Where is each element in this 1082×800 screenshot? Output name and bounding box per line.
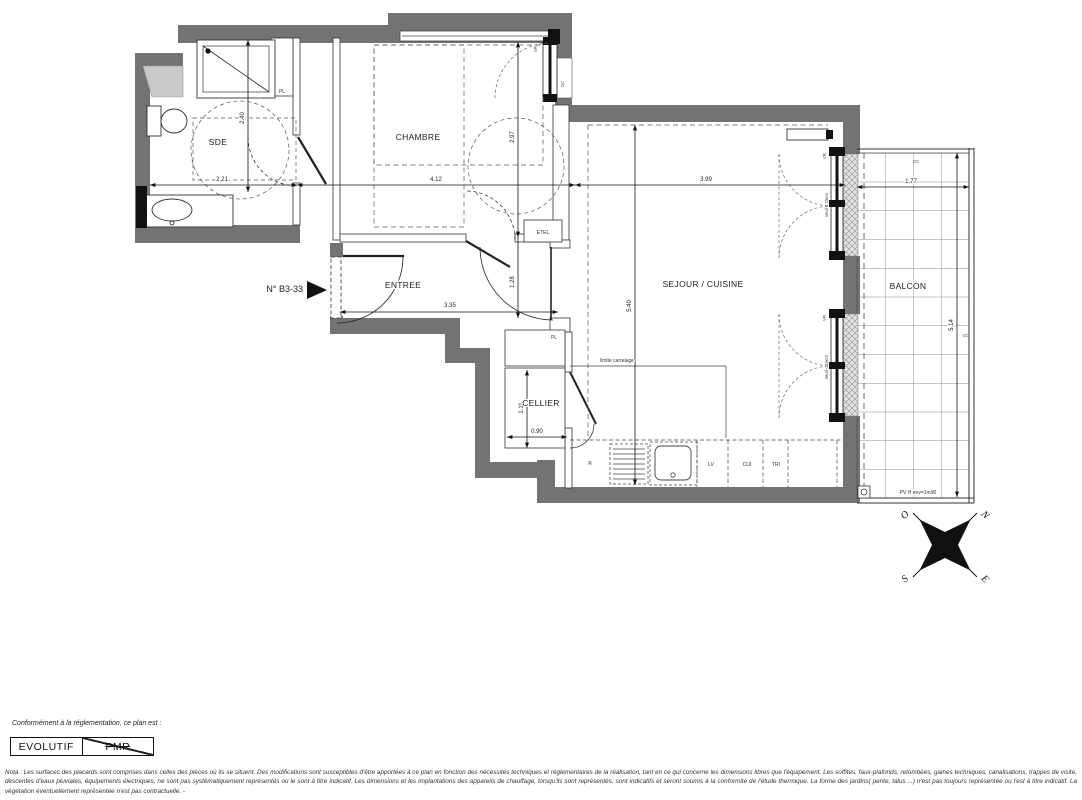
tag-pare-vue: PV H env=1m90 <box>900 490 937 496</box>
kitchen-sink <box>655 446 691 480</box>
balcony <box>857 148 974 503</box>
dim-entree-height: 1.28 <box>510 276 516 288</box>
chambre-door-leaf <box>466 241 510 267</box>
tag-limite-carrelage: limite carrelage <box>600 358 634 364</box>
evolutif-label: EVOLUTIF <box>19 741 74 753</box>
hatched-wall-bottom <box>843 314 858 416</box>
tag-kitchen-fridge: R <box>588 461 592 467</box>
tag-etel: ETEL <box>537 230 550 236</box>
tag-pl-chambre: PL <box>279 89 285 95</box>
pmr-cell-crossed: PMR <box>83 738 154 755</box>
tag-kitchen-cooker: CUI <box>743 462 752 468</box>
floor-plan-page: 2.21 4.12 3.99 1.77 2.40 2.97 1.28 5.40 … <box>0 0 1082 800</box>
sejour-window-1 <box>779 147 845 260</box>
radiator-valve <box>826 130 833 139</box>
hatched-wall-top <box>843 154 858 256</box>
shower-drain <box>205 48 210 53</box>
sde-door-swing <box>248 137 297 186</box>
compass-rose: O N S E <box>899 508 992 585</box>
apartment-number: N° B3-33 <box>266 281 327 299</box>
chambre-window <box>495 37 557 102</box>
footer-caption: Conformément à la réglementation, ce pla… <box>12 720 161 727</box>
sde-door-leaf <box>298 137 326 184</box>
tag-seuil-bottom: seuil < 15cm <box>824 354 829 379</box>
kitchen-tap <box>671 473 675 477</box>
compass-north: N <box>978 508 992 522</box>
tag-gc-chambre: GC <box>560 81 565 87</box>
cellier-walls <box>505 368 565 448</box>
tag-kitchen-dishwasher: LV <box>708 462 714 468</box>
sde-clearance-rect <box>193 118 296 180</box>
chambre-turning-circle <box>468 118 564 214</box>
chambre-door-swing <box>466 191 515 240</box>
room-label-chambre: CHAMBRE <box>396 132 441 142</box>
room-label-balcon: BALCON <box>890 281 927 291</box>
compass-west: O <box>899 509 912 522</box>
pmr-label: PMR <box>105 741 130 753</box>
washbasin <box>152 199 192 221</box>
room-label-sde: SDE <box>209 137 227 147</box>
dim-chambre-height: 2.97 <box>510 131 516 143</box>
balcony-drain <box>858 486 870 498</box>
room-label-sejour: SEJOUR / CUISINE <box>663 279 744 289</box>
evolutif-cell: EVOLUTIF <box>11 738 83 755</box>
apartment-number-label: N° B3-33 <box>266 284 303 294</box>
tag-kitchen-recycling: TRI <box>772 462 780 468</box>
tag-gc-balcon-top: GC <box>913 159 919 164</box>
compass-star <box>920 520 971 571</box>
entrance-door-swing <box>337 257 403 323</box>
radiator <box>787 129 828 140</box>
room-label-entree: ENTREE <box>385 280 421 290</box>
dim-entree-width: 3.35 <box>444 303 456 309</box>
kitchen <box>570 440 843 487</box>
dim-chambre-width: 4.12 <box>430 177 442 183</box>
toilet-tank <box>147 106 161 136</box>
compass-east: E <box>978 572 991 585</box>
tile-limit-line <box>570 366 726 438</box>
dim-balcon-height: 5.14 <box>949 319 955 331</box>
dim-sde-width: 2.21 <box>216 177 228 183</box>
washbasin-tap <box>170 221 174 225</box>
cellier-door-swing <box>570 424 594 448</box>
sde-duct <box>136 186 147 228</box>
sejour-door-swing <box>480 247 553 320</box>
dim-sejour-height: 5.40 <box>627 300 633 312</box>
dim-cellier-width: 0.90 <box>531 429 543 435</box>
front-door-closed <box>331 257 341 318</box>
tag-vr-chambre: VR <box>533 46 538 52</box>
tag-pl-entree: PL <box>551 335 557 341</box>
entrance-arrow-icon <box>307 281 327 299</box>
cellier-door-leaf <box>570 372 596 424</box>
dim-sejour-width: 3.99 <box>700 177 712 183</box>
gc-duct <box>557 58 572 98</box>
sejour-window-2 <box>779 309 845 422</box>
floor-plan-drawing: 2.21 4.12 3.99 1.77 2.40 2.97 1.28 5.40 … <box>0 0 1082 800</box>
plan-type-table: EVOLUTIF PMR <box>10 737 154 756</box>
tag-vr-sejour-top: VR <box>822 153 827 159</box>
compass-south: S <box>900 574 911 585</box>
tag-vr-sejour-bottom: VR <box>822 315 827 321</box>
toilet-bowl <box>161 109 187 133</box>
tag-seuil-top: seuil < 15cm <box>824 192 829 217</box>
dim-sde-height: 2.40 <box>240 112 246 124</box>
room-label-cellier: CELLIER <box>522 398 560 408</box>
dim-balcon-width: 1.77 <box>905 179 917 185</box>
footer-disclaimer: Nota : Les surfaces des placards sont co… <box>5 768 1077 796</box>
tag-gc-balcon-right: GC <box>963 333 969 338</box>
